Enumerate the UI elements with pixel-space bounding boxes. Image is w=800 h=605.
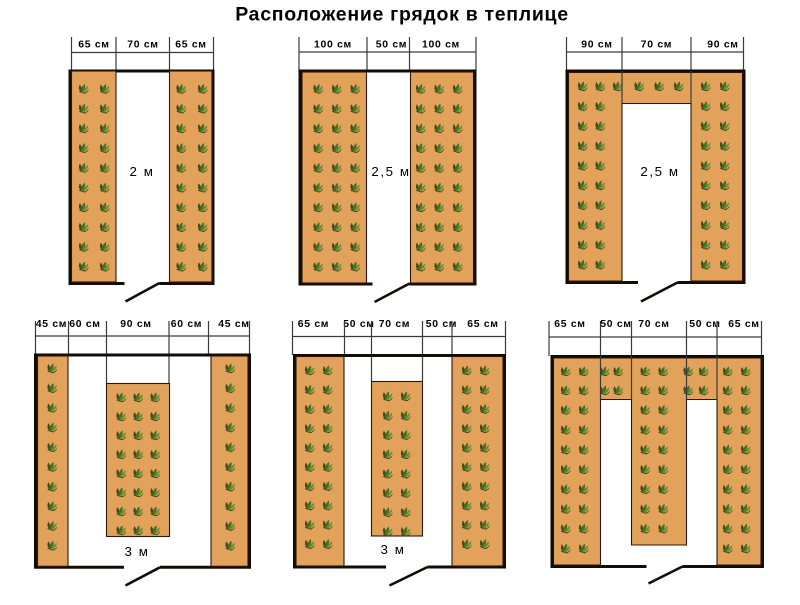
svg-text:2,5 м: 2,5 м [371,164,410,179]
svg-text:70 см: 70 см [638,319,669,330]
svg-text:45 см: 45 см [218,319,249,330]
svg-text:50 см: 50 см [343,319,374,330]
svg-text:90 см: 90 см [581,40,612,51]
svg-text:65 см: 65 см [728,319,759,330]
svg-text:65 см: 65 см [298,319,329,330]
svg-text:90 см: 90 см [120,319,151,330]
svg-text:3 м: 3 м [124,544,149,559]
svg-text:Расположение грядок в теплице: Расположение грядок в теплице [235,4,569,26]
svg-text:90 см: 90 см [707,40,738,51]
svg-text:100 см: 100 см [422,40,460,51]
svg-text:50 см: 50 см [600,319,631,330]
svg-text:65 см: 65 см [78,40,109,51]
svg-text:2 м: 2 м [129,164,154,179]
svg-text:100 см: 100 см [314,40,352,51]
svg-text:2,5 м: 2,5 м [640,164,679,179]
svg-text:60 см: 60 см [69,319,100,330]
svg-text:70 см: 70 см [641,40,672,51]
svg-text:65 см: 65 см [554,319,585,330]
svg-text:3 м: 3 м [380,542,405,557]
svg-text:70 см: 70 см [379,319,410,330]
svg-text:50 см: 50 см [689,319,720,330]
svg-text:65 см: 65 см [467,319,498,330]
svg-text:50 см: 50 см [376,40,407,51]
svg-text:65 см: 65 см [175,40,206,51]
svg-text:60 см: 60 см [171,319,202,330]
svg-text:70 см: 70 см [127,40,158,51]
svg-text:45 см: 45 см [36,319,67,330]
